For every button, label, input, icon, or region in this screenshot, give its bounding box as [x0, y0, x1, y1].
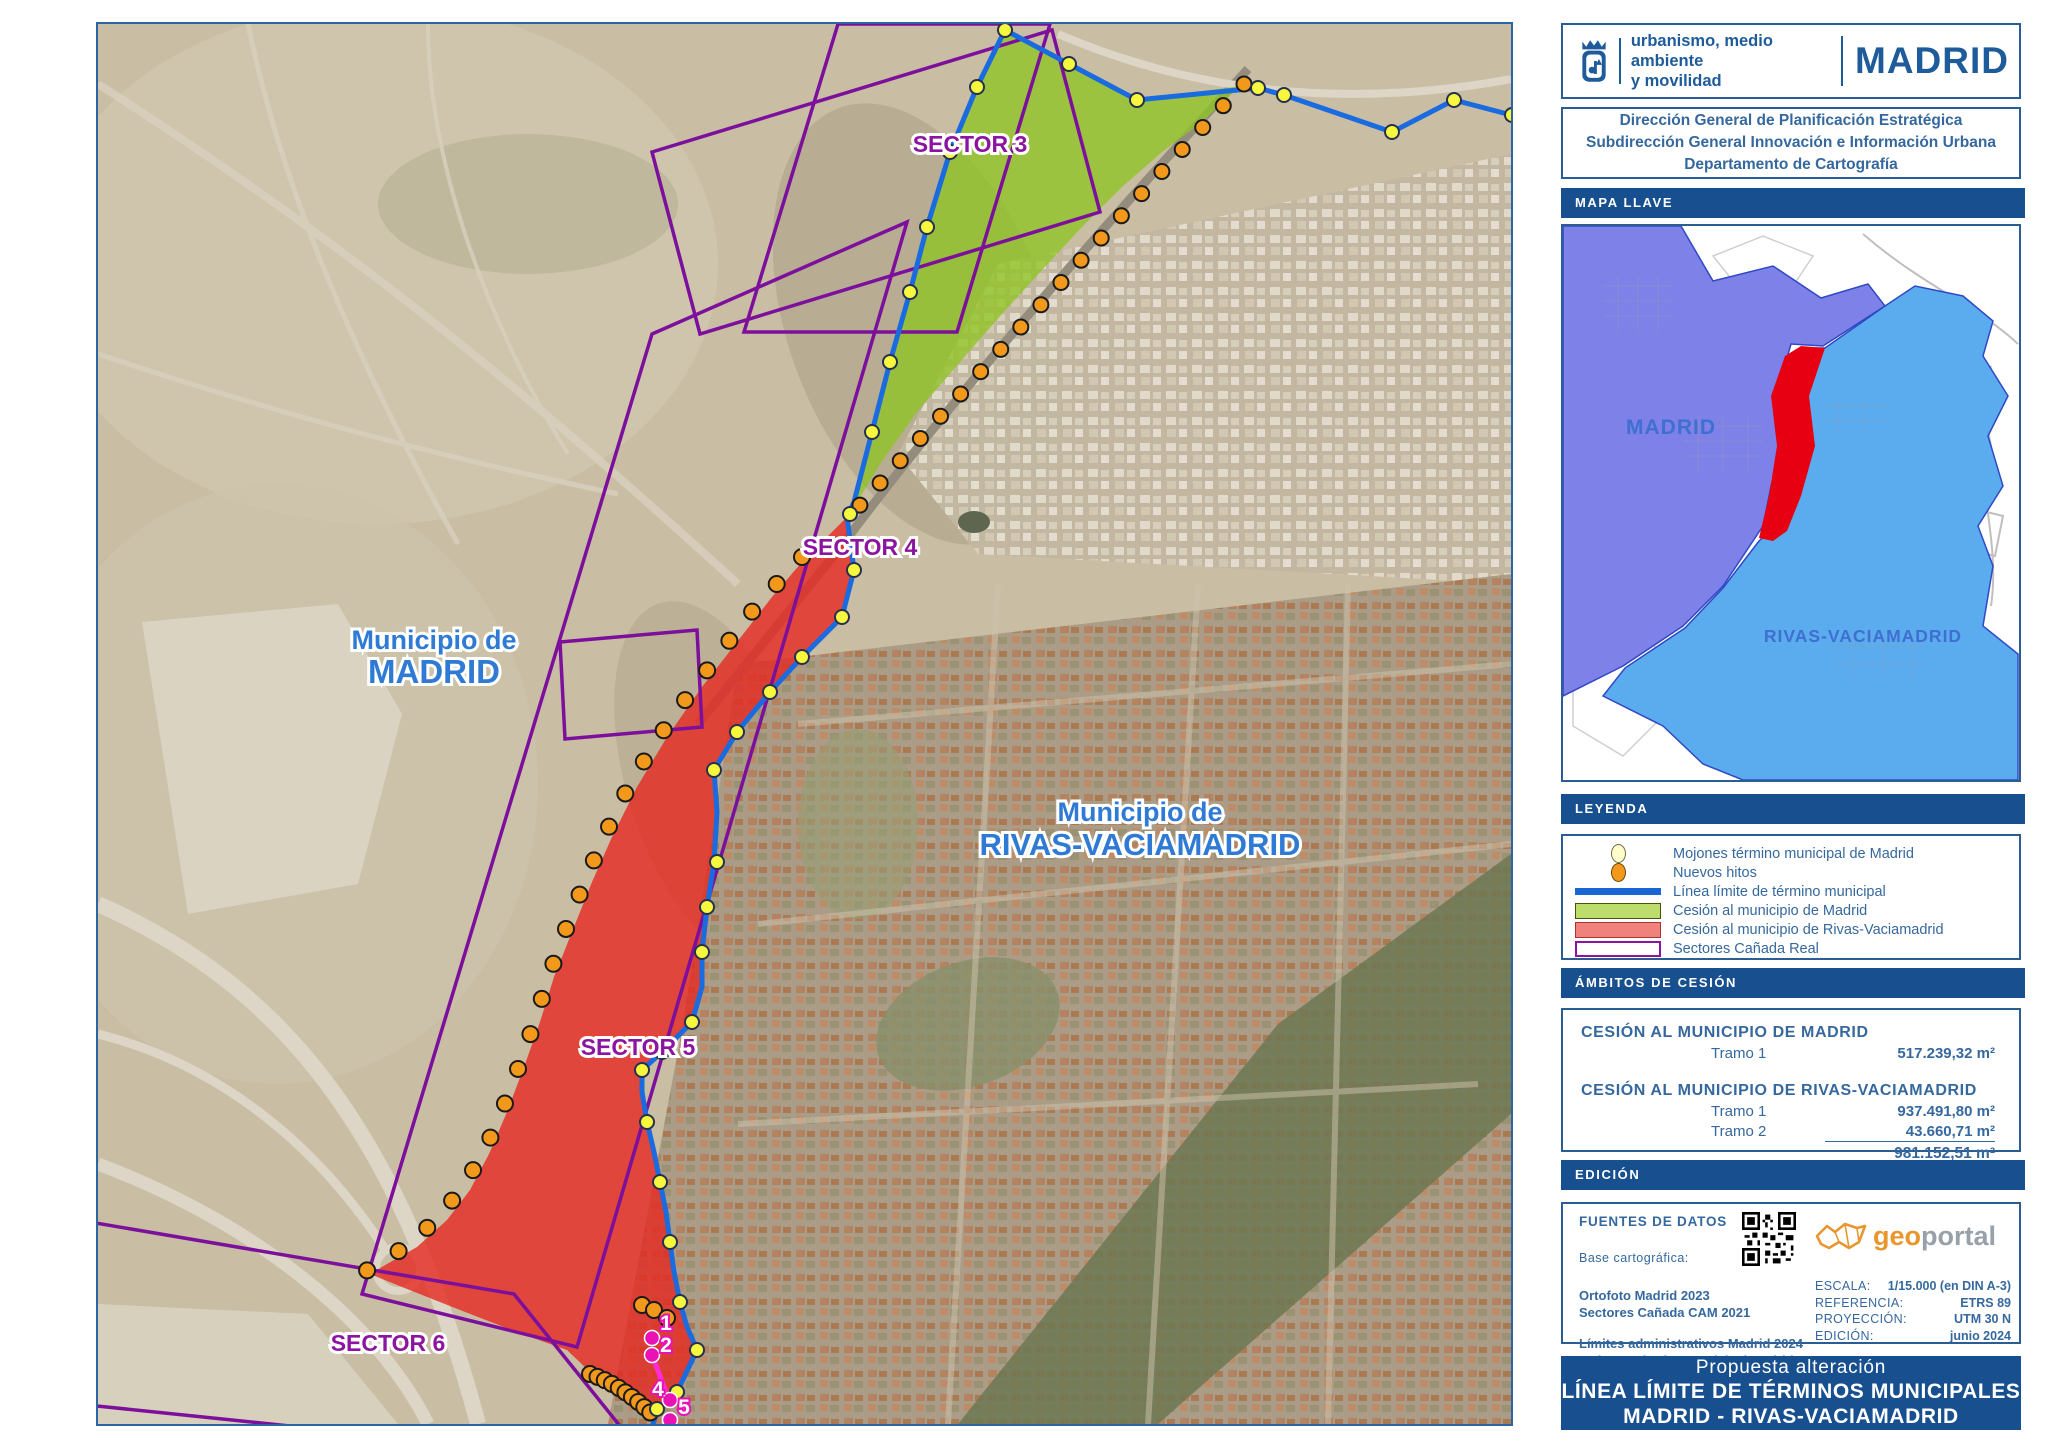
logo-header: urbanismo, medio ambiente y movilidad MA…	[1561, 23, 2021, 99]
fuentes-de-datos: FUENTES DE DATOS Base cartográfica: Orto…	[1561, 1202, 2021, 1344]
tramo-label: Tramo 2	[1711, 1123, 1791, 1140]
sector-icon	[1575, 941, 1661, 957]
logo-dept-line1: urbanismo, medio ambiente	[1631, 31, 1829, 71]
legend-item: Mojones término municipal de Madrid	[1563, 844, 2019, 863]
org-line-1: Dirección General de Planificación Estra…	[1620, 110, 1963, 132]
tramo-label: Tramo 1	[1711, 1045, 1791, 1062]
legend: Mojones término municipal de Madrid Nuev…	[1561, 834, 2021, 960]
source-limites: Límites administrativos Madrid 2024	[1579, 1335, 1814, 1352]
legend-item: Sectores Cañada Real	[1563, 939, 2019, 958]
red-icon	[1575, 922, 1661, 938]
meta-value: 1/15.000 (en DIN A-3)	[1888, 1278, 2011, 1295]
madrid-crest-icon	[1577, 39, 1611, 83]
key-map-canvas: MADRID RIVAS-VACIAMADRID	[1563, 226, 2019, 780]
legend-item: Línea límite de término municipal	[1563, 882, 2019, 901]
logo-dept-line2: y movilidad	[1631, 71, 1829, 91]
cesion-rivas-tramo2: Tramo 2 43.660,71 m²	[1581, 1123, 1995, 1142]
geoportal-logo: geoportal	[1815, 1220, 1996, 1252]
meta-label: ESCALA:	[1815, 1278, 1871, 1295]
municipio-madrid-label-2: MADRID	[368, 653, 500, 690]
qr-code	[1742, 1212, 1796, 1266]
org-box: Dirección General de Planificación Estra…	[1561, 107, 2021, 179]
municipio-rivas-label-2: RIVAS-VACIAMADRID	[980, 827, 1301, 862]
meta-value: UTM 30 N	[1954, 1311, 2011, 1328]
sector3-label: SECTOR 3	[913, 131, 1028, 157]
meta-edicion: EDICIÓN: junio 2024	[1815, 1328, 2011, 1345]
source-sectores: Sectores Cañada CAM 2021	[1579, 1304, 1814, 1321]
legend-item: Cesión al municipio de Rivas-Vaciamadrid	[1563, 920, 2019, 939]
section-bar-leyenda: LEYENDA	[1561, 794, 2025, 824]
source-ortofoto: Ortofoto Madrid 2023	[1579, 1287, 1814, 1304]
mojon-icon	[1611, 844, 1626, 863]
tramo-value: 517.239,32 m²	[1825, 1045, 1995, 1062]
meta-escala: ESCALA: 1/15.000 (en DIN A-3)	[1815, 1278, 2011, 1295]
logo-divider-2	[1841, 36, 1843, 86]
legend-item: Nuevos hitos	[1563, 863, 2019, 882]
meta-label: PROYECCIÓN:	[1815, 1311, 1907, 1328]
legend-item: Cesión al municipio de Madrid	[1563, 901, 2019, 920]
meta-proyeccion: PROYECCIÓN: UTM 30 N	[1815, 1311, 2011, 1328]
map-metadata: ESCALA: 1/15.000 (en DIN A-3) REFERENCIA…	[1815, 1278, 2011, 1344]
section-bar-edicion: EDICIÓN	[1561, 1160, 2025, 1190]
legend-label: Cesión al municipio de Madrid	[1673, 903, 1867, 919]
geoportal-portal-text: portal	[1921, 1221, 1996, 1251]
key-map: MADRID RIVAS-VACIAMADRID	[1561, 224, 2021, 782]
cesion-madrid-tramo1: Tramo 1 517.239,32 m²	[1581, 1045, 1995, 1062]
sheet-title: Propuesta alteración LÍNEA LÍMITE DE TÉR…	[1561, 1356, 2021, 1430]
legend-label: Sectores Cañada Real	[1673, 941, 1819, 957]
org-line-3: Departamento de Cartografía	[1684, 154, 1898, 176]
legend-label: Línea límite de término municipal	[1673, 884, 1886, 900]
cesion-madrid-title: CESIÓN AL MUNICIPIO DE MADRID	[1581, 1024, 1995, 1042]
main-map: 1245 SECTOR 3 SECTOR 4 SECTOR 5 SECTOR 6…	[96, 22, 1513, 1426]
logo-city: MADRID	[1855, 40, 2009, 82]
meta-value: ETRS 89	[1960, 1295, 2011, 1312]
keymap-madrid-label: MADRID	[1626, 416, 1716, 439]
cesion-rivas-title: CESIÓN AL MUNICIPIO DE RIVAS-VACIAMADRID	[1581, 1082, 1995, 1100]
section-bar-ambitos: ÁMBITOS DE CESIÓN	[1561, 968, 2025, 998]
sheet-title-line1: Propuesta alteración	[1696, 1357, 1886, 1379]
svg-text:1: 1	[660, 1312, 672, 1335]
sheet-title-line2: LÍNEA LÍMITE DE TÉRMINOS MUNICIPALES	[1561, 1379, 2020, 1404]
line-icon	[1575, 888, 1661, 895]
legend-label: Cesión al municipio de Rivas-Vaciamadrid	[1673, 922, 1944, 938]
sheet-title-line3: MADRID - RIVAS-VACIAMADRID	[1623, 1404, 1959, 1429]
legend-label: Nuevos hitos	[1673, 865, 1757, 881]
cesion-rivas-tramo1: Tramo 1 937.491,80 m²	[1581, 1103, 1995, 1120]
sector6-label: SECTOR 6	[331, 1330, 446, 1356]
svg-text:5: 5	[678, 1396, 690, 1419]
meta-referencia: REFERENCIA: ETRS 89	[1815, 1295, 2011, 1312]
sector5-label: SECTOR 5	[581, 1034, 696, 1060]
green-icon	[1575, 903, 1661, 919]
meta-label: EDICIÓN:	[1815, 1328, 1874, 1345]
geoportal-geo-text: geo	[1873, 1221, 1921, 1251]
org-line-2: Subdirección General Innovación e Inform…	[1586, 132, 1996, 154]
municipio-rivas-label-1: Municipio de	[1058, 797, 1223, 827]
svg-text:4: 4	[652, 1378, 664, 1401]
tramo-value: 937.491,80 m²	[1825, 1103, 1995, 1120]
svg-text:2: 2	[660, 1334, 672, 1357]
main-map-canvas: 1245 SECTOR 3 SECTOR 4 SECTOR 5 SECTOR 6…	[98, 24, 1511, 1424]
tramo-value: 43.660,71 m²	[1825, 1123, 1995, 1142]
municipio-madrid-label-1: Municipio de	[352, 625, 517, 655]
meta-label: REFERENCIA:	[1815, 1295, 1903, 1312]
logo-divider	[1619, 38, 1621, 84]
geoportal-map-icon	[1815, 1220, 1867, 1252]
meta-value: junio 2024	[1950, 1328, 2011, 1345]
sector4-label: SECTOR 4	[803, 534, 918, 560]
keymap-rivas-label: RIVAS-VACIAMADRID	[1764, 626, 1962, 646]
legend-label: Mojones término municipal de Madrid	[1673, 846, 1914, 862]
map-sheet: 1245 SECTOR 3 SECTOR 4 SECTOR 5 SECTOR 6…	[0, 0, 2048, 1448]
ambitos-de-cesion: CESIÓN AL MUNICIPIO DE MADRID Tramo 1 51…	[1561, 1008, 2021, 1152]
hito-icon	[1611, 863, 1626, 882]
section-bar-mapa-llave: MAPA LLAVE	[1561, 188, 2025, 218]
tramo-label: Tramo 1	[1711, 1103, 1791, 1120]
